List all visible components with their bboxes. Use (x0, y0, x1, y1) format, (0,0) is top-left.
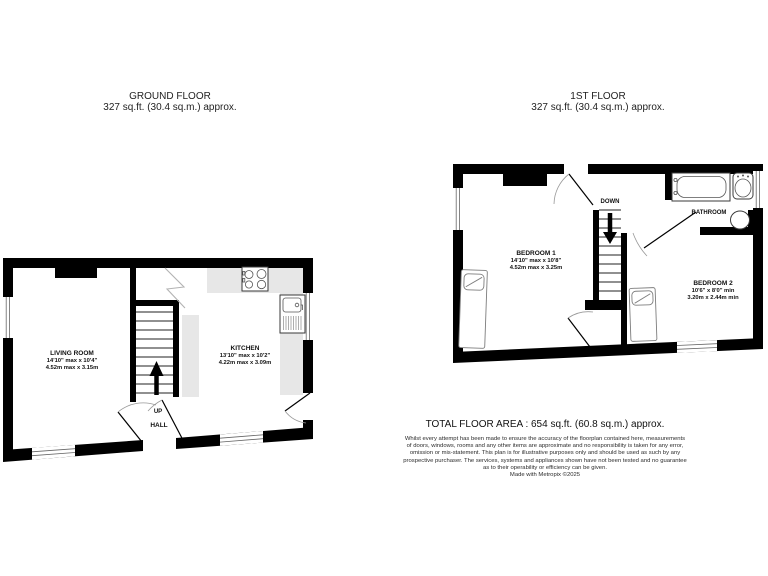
living-room-label: LIVING ROOM (50, 350, 94, 357)
first-floor-plan: BEDROOM 1 14'10" max x 10'8" 4.52m max x… (450, 160, 768, 372)
kitchen-dims-imperial: 13'10" max x 10'2" (220, 353, 271, 359)
kitchen-sink (280, 295, 305, 333)
footer: TOTAL FLOOR AREA : 654 sq.ft. (60.8 sq.m… (395, 419, 695, 479)
bedroom1-label: BEDROOM 1 (516, 250, 556, 257)
bedroom2-window (677, 340, 717, 353)
bedroom1-door (554, 174, 593, 205)
bed-1 (459, 270, 488, 349)
bedroom1-dims-imperial: 14'10" max x 10'8" (511, 258, 562, 264)
ground-stairs (130, 268, 185, 402)
living-room-dims-metric: 4.52m max x 3.15m (46, 365, 99, 371)
bedroom2-label: BEDROOM 2 (693, 280, 733, 287)
stair-right-wall (173, 306, 179, 397)
bed-2 (629, 288, 657, 342)
stair-left-wall (593, 210, 599, 300)
living-room-dims-imperial: 14'10" max x 10'4" (47, 358, 98, 364)
bedroom2-dims-metric: 3.20m x 2.44m min (687, 295, 739, 301)
bathroom-left-wall (665, 174, 672, 200)
bedroom-divider-wall (621, 233, 627, 345)
bedroom2-dims-imperial: 10'6" x 8'0" min (692, 288, 735, 294)
ground-floor-header: GROUND FLOOR 327 sq.ft. (30.4 sq.m.) app… (50, 91, 290, 113)
disclaimer-line: Whilst every attempt has been made to en… (395, 436, 695, 443)
landing-door-opening (564, 164, 588, 174)
total-floor-area: TOTAL FLOOR AREA : 654 sq.ft. (60.8 sq.m… (395, 419, 695, 430)
up-label: UP (154, 409, 162, 415)
kitchen-dims-metric: 4.22m max x 3.09m (219, 360, 272, 366)
stair-side-unit (182, 315, 199, 397)
wall-left (3, 258, 13, 454)
first-floor-header: 1ST FLOOR 327 sq.ft. (30.4 sq.m.) approx… (478, 91, 718, 113)
bathtub (672, 173, 730, 201)
ground-floor-plan: LIVING ROOM 14'10" max x 10'4" 4.52m max… (0, 250, 330, 476)
hob (242, 267, 268, 291)
front-window-left (32, 445, 75, 460)
understairs-door (568, 312, 593, 347)
wall-right-upper (303, 258, 313, 293)
hall-label: HALL (150, 422, 167, 429)
front-window-right (220, 431, 263, 446)
floorplan-page: GROUND FLOOR 327 sq.ft. (30.4 sq.m.) app… (0, 0, 768, 576)
hall-door-right (148, 400, 184, 442)
chimney-breast (503, 174, 547, 186)
disclaimer-line: of doors, windows, rooms and any other i… (395, 443, 695, 450)
kitchen-label: KITCHEN (231, 345, 260, 352)
toilet (731, 210, 755, 230)
stair-top-wall (136, 300, 179, 306)
wall-right-mid (303, 340, 313, 393)
bedroom1-dims-metric: 4.52m max x 3.25m (510, 265, 563, 271)
basin (733, 173, 753, 199)
bathroom-window (753, 171, 763, 208)
first-floor-area: 327 sq.ft. (30.4 sq.m.) approx. (478, 102, 718, 113)
disclaimer-line: prospective purchaser. The services, sys… (395, 458, 695, 465)
disclaimer-line: omission or mis-statement. This plan is … (395, 450, 695, 457)
first-floor-title: 1ST FLOOR (478, 91, 718, 102)
disclaimer-line: as to their operability or efficiency ca… (395, 465, 695, 472)
ground-floor-area: 327 sq.ft. (30.4 sq.m.) approx. (50, 102, 290, 113)
chimney-breast (55, 268, 97, 278)
bathroom-door (633, 212, 696, 256)
stair-bottom-wall (585, 300, 623, 310)
kitchen-back-door (285, 393, 310, 423)
wall-living-divider (130, 268, 136, 402)
down-label: DOWN (601, 199, 620, 205)
ground-floor-title: GROUND FLOOR (50, 91, 290, 102)
metropix-credit: Made with Metropix ©2025 (395, 472, 695, 479)
living-room-window (3, 297, 13, 338)
bathroom-label: BATHROOM (692, 210, 727, 216)
wall-right-corner (303, 420, 313, 434)
disclaimer: Whilst every attempt has been made to en… (395, 436, 695, 479)
bedroom1-window (453, 188, 463, 230)
